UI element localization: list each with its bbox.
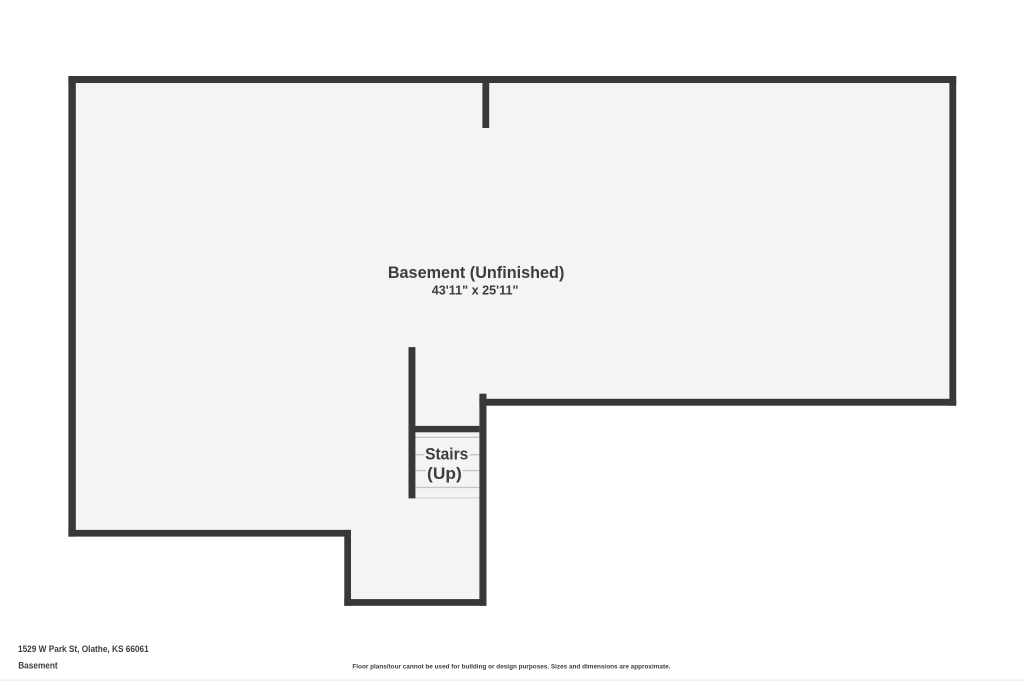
svg-text:Floor plans/tour cannot be use: Floor plans/tour cannot be used for buil… [352,664,670,671]
svg-text:43'11" x 25'11": 43'11" x 25'11" [432,283,519,297]
svg-text:Basement: Basement [18,660,58,671]
svg-text:Basement (Unfinished): Basement (Unfinished) [388,264,565,282]
svg-text:(Up): (Up) [427,465,462,483]
svg-text:Stairs: Stairs [425,446,468,464]
svg-text:1529 W Park St, Olathe, KS 660: 1529 W Park St, Olathe, KS 66061 [18,643,149,654]
